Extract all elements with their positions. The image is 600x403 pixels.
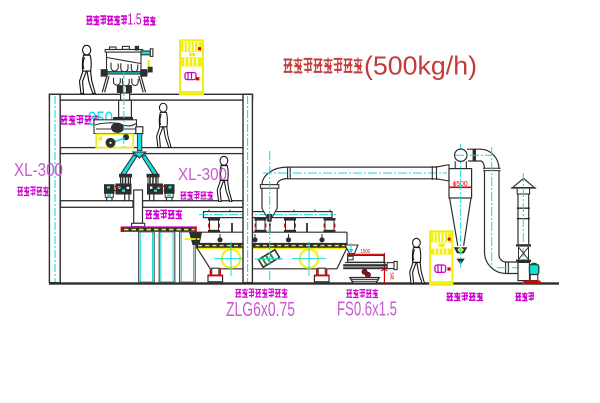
svg-text:(500kg/h): (500kg/h) [364,51,477,81]
svg-text:FS0.6x1.5: FS0.6x1.5 [337,299,397,321]
svg-text:1500: 1500 [361,249,371,255]
svg-text:1.5: 1.5 [128,12,142,29]
svg-text:548: 548 [388,273,394,280]
svg-text:XL-300: XL-300 [178,164,227,184]
svg-text:XL-300: XL-300 [14,160,63,180]
svg-text:ZLG6x0.75: ZLG6x0.75 [226,299,295,321]
